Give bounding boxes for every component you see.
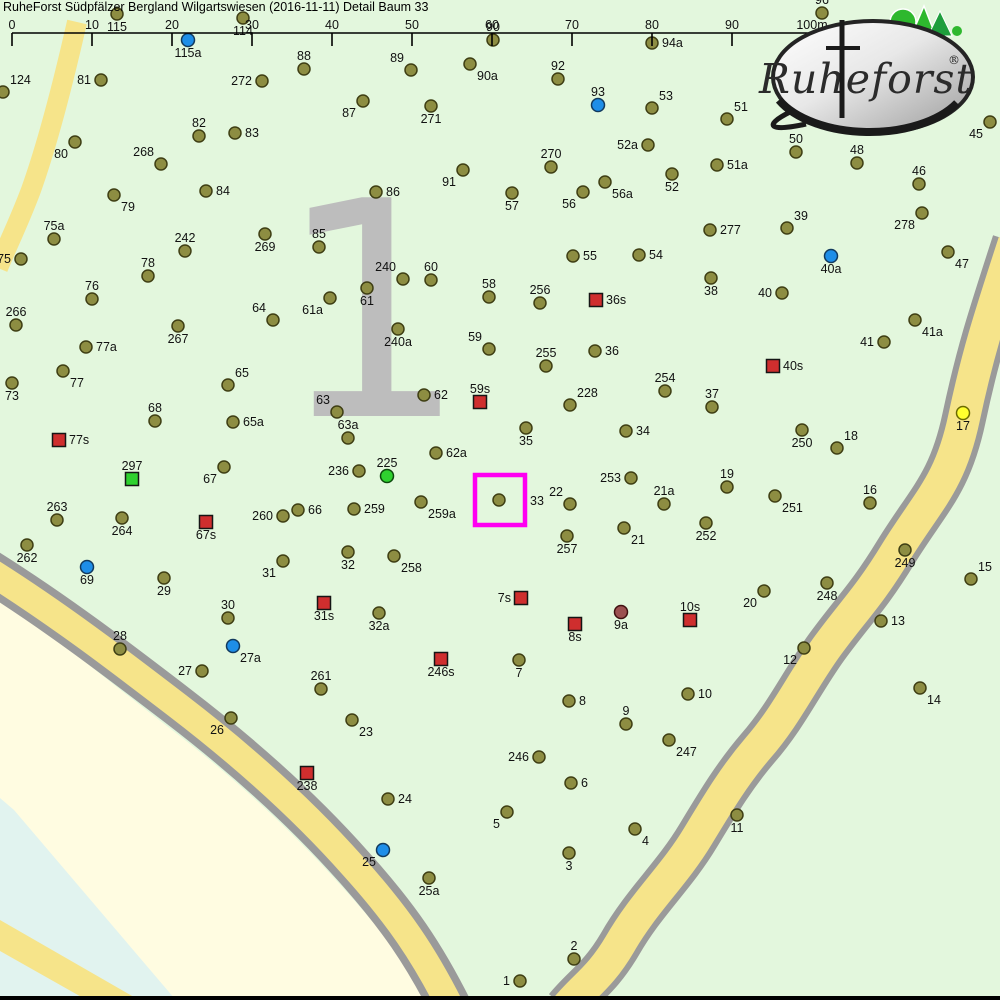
tree-olive-dot-62a[interactable] [430, 447, 442, 459]
scale-label-20: 20 [165, 18, 179, 32]
tree-olive-dot-58[interactable] [483, 291, 495, 303]
tree-olive-dot-2[interactable] [568, 953, 580, 965]
tree-label-63: 63 [316, 393, 330, 407]
tree-olive-dot-92[interactable] [552, 73, 564, 85]
tree-label-15: 15 [978, 560, 992, 574]
tree-label-271: 271 [421, 112, 442, 126]
tree-label-260: 260 [252, 509, 273, 523]
tree-olive-dot-236[interactable] [353, 465, 365, 477]
tree-label-27a: 27a [240, 651, 261, 665]
tree-olive-dot-252[interactable] [700, 517, 712, 529]
blue-dot-115a[interactable] [182, 34, 195, 47]
tree-label-247: 247 [676, 745, 697, 759]
tree-label-32a: 32a [369, 619, 390, 633]
tree-label-19: 19 [720, 467, 734, 481]
tree-label-73: 73 [5, 389, 19, 403]
tree-olive-dot-16[interactable] [864, 497, 876, 509]
tree-olive-dot-124[interactable] [0, 86, 9, 98]
tree-label-51a: 51a [727, 158, 748, 172]
tree-olive-dot-253[interactable] [625, 472, 637, 484]
tree-label-7: 7 [516, 666, 523, 680]
tree-olive-dot-76[interactable] [86, 293, 98, 305]
tree-olive-dot-64[interactable] [267, 314, 279, 326]
tree-label-258: 258 [401, 561, 422, 575]
tree-label-17: 17 [956, 419, 970, 433]
map-title: RuheForst Südpfälzer Bergland Wilgartswi… [3, 0, 428, 14]
tree-label-50: 50 [789, 132, 803, 146]
tree-label-86: 86 [386, 185, 400, 199]
tree-olive-dot-50[interactable] [790, 146, 802, 158]
scale-label-50: 50 [405, 18, 419, 32]
tree-label-63a: 63a [338, 418, 359, 432]
tree-label-25: 25 [362, 855, 376, 869]
tree-olive-dot-260[interactable] [277, 510, 289, 522]
tree-olive-dot-55[interactable] [567, 250, 579, 262]
tree-olive-dot-62[interactable] [418, 389, 430, 401]
tree-olive-dot-26[interactable] [225, 712, 237, 724]
tree-olive-dot-90a[interactable] [464, 58, 476, 70]
tree-label-21: 21 [631, 533, 645, 547]
tree-olive-dot-24[interactable] [382, 793, 394, 805]
tree-olive-dot-65a[interactable] [227, 416, 239, 428]
tree-label-35: 35 [519, 434, 533, 448]
tree-label-270: 270 [541, 147, 562, 161]
tree-label-68: 68 [148, 401, 162, 415]
tree-olive-dot-248[interactable] [821, 577, 833, 589]
tree-label-228: 228 [577, 386, 598, 400]
tree-olive-dot-11[interactable] [731, 809, 743, 821]
tree-olive-dot-48[interactable] [851, 157, 863, 169]
tree-label-53: 53 [659, 89, 673, 103]
tree-olive-dot-268[interactable] [155, 158, 167, 170]
tree-label-66: 66 [308, 503, 322, 517]
tree-label-69: 69 [80, 573, 94, 587]
tree-label-3: 3 [566, 859, 573, 873]
blue-dot-25[interactable] [377, 844, 390, 857]
tree-olive-dot-88[interactable] [298, 63, 310, 75]
tree-olive-dot-23[interactable] [346, 714, 358, 726]
tree-label-31s: 31s [314, 609, 334, 623]
red-square-marker-10s[interactable] [684, 614, 697, 627]
tree-label-24: 24 [398, 792, 412, 806]
tree-olive-dot-40[interactable] [776, 287, 788, 299]
tree-olive-dot-278[interactable] [916, 207, 928, 219]
tree-olive-dot-13[interactable] [875, 615, 887, 627]
tree-olive-dot-21a[interactable] [658, 498, 670, 510]
tree-label-268: 268 [133, 145, 154, 159]
tree-label-82: 82 [192, 116, 206, 130]
tree-olive-dot-3[interactable] [563, 847, 575, 859]
tree-olive-dot-32a[interactable] [373, 607, 385, 619]
tree-olive-dot-91[interactable] [457, 164, 469, 176]
tree-olive-dot-228[interactable] [564, 399, 576, 411]
tree-olive-dot-79[interactable] [108, 189, 120, 201]
tree-label-5: 5 [493, 817, 500, 831]
tree-olive-dot-33[interactable] [493, 494, 505, 506]
tree-olive-dot-271[interactable] [425, 100, 437, 112]
tree-olive-dot-51a[interactable] [711, 159, 723, 171]
tree-label-83: 83 [245, 126, 259, 140]
tree-olive-dot-25a[interactable] [423, 872, 435, 884]
tree-olive-dot-257[interactable] [561, 530, 573, 542]
red-square-marker-8s[interactable] [569, 618, 582, 631]
tree-label-77a: 77a [96, 340, 117, 354]
tree-olive-dot-240[interactable] [397, 273, 409, 285]
tree-olive-dot-14[interactable] [914, 682, 926, 694]
tree-olive-dot-4[interactable] [629, 823, 641, 835]
tree-olive-dot-1[interactable] [514, 975, 526, 987]
tree-olive-dot-51[interactable] [721, 113, 733, 125]
tree-olive-dot-264[interactable] [116, 512, 128, 524]
tree-label-259: 259 [364, 502, 385, 516]
tree-label-76: 76 [85, 279, 99, 293]
tree-label-84: 84 [216, 184, 230, 198]
tree-label-246s: 246s [427, 665, 454, 679]
tree-olive-dot-10[interactable] [682, 688, 694, 700]
tree-olive-dot-46[interactable] [913, 178, 925, 190]
tree-label-39: 39 [794, 209, 808, 223]
tree-label-62a: 62a [446, 446, 467, 460]
tree-label-40: 40 [758, 286, 772, 300]
tree-label-47: 47 [955, 257, 969, 271]
red-square-marker-7s[interactable] [515, 592, 528, 605]
tree-label-254: 254 [655, 371, 676, 385]
tree-olive-dot-12[interactable] [798, 642, 810, 654]
tree-olive-dot-6[interactable] [565, 777, 577, 789]
tree-olive-dot-80[interactable] [69, 136, 81, 148]
tree-label-67s: 67s [196, 528, 216, 542]
yellow-dot-17[interactable] [957, 407, 970, 420]
tree-olive-dot-67[interactable] [218, 461, 230, 473]
tree-olive-dot-18[interactable] [831, 442, 843, 454]
tree-label-67: 67 [203, 472, 217, 486]
blue-dot-40a[interactable] [825, 250, 838, 263]
darkred-dot-9a[interactable] [615, 606, 628, 619]
tree-olive-dot-19[interactable] [721, 481, 733, 493]
tree-label-46: 46 [912, 164, 926, 178]
tree-label-246: 246 [508, 750, 529, 764]
tree-label-14: 14 [927, 693, 941, 707]
tree-olive-dot-255[interactable] [540, 360, 552, 372]
tree-olive-dot-256[interactable] [534, 297, 546, 309]
tree-olive-dot-32[interactable] [342, 546, 354, 558]
red-square-marker-31s[interactable] [318, 597, 331, 610]
tree-label-115a: 115a [175, 46, 202, 60]
tree-label-51: 51 [734, 100, 748, 114]
tree-label-59: 59 [468, 330, 482, 344]
tree-olive-dot-21[interactable] [618, 522, 630, 534]
tree-olive-dot-29[interactable] [158, 572, 170, 584]
tree-label-93: 93 [591, 85, 605, 99]
scale-label-70: 70 [565, 18, 579, 32]
tree-label-77s: 77s [69, 433, 89, 447]
tree-label-124: 124 [10, 73, 31, 87]
tree-label-62: 62 [434, 388, 448, 402]
red-square-marker-67s[interactable] [200, 516, 213, 529]
green-dot-225[interactable] [381, 470, 394, 483]
tree-label-32: 32 [341, 558, 355, 572]
tree-label-56: 56 [562, 197, 576, 211]
tree-olive-dot-84[interactable] [200, 185, 212, 197]
tree-olive-dot-52[interactable] [666, 168, 678, 180]
red-square-marker-36s[interactable] [590, 294, 603, 307]
tree-label-40s: 40s [783, 359, 803, 373]
tree-label-36: 36 [605, 344, 619, 358]
tree-label-256: 256 [530, 283, 551, 297]
tree-olive-dot-22[interactable] [564, 498, 576, 510]
tree-label-65a: 65a [243, 415, 264, 429]
tree-olive-dot-8[interactable] [563, 695, 575, 707]
tree-olive-dot-87[interactable] [357, 95, 369, 107]
tree-label-34: 34 [636, 424, 650, 438]
tree-olive-dot-45[interactable] [984, 116, 996, 128]
tree-label-37: 37 [705, 387, 719, 401]
tree-olive-dot-61a[interactable] [324, 292, 336, 304]
tree-olive-dot-52a[interactable] [642, 139, 654, 151]
tree-olive-dot-34[interactable] [620, 425, 632, 437]
tree-olive-dot-240a[interactable] [392, 323, 404, 335]
tree-olive-dot-54[interactable] [633, 249, 645, 261]
tree-label-92: 92 [551, 59, 565, 73]
tree-olive-dot-259[interactable] [348, 503, 360, 515]
tree-olive-dot-254[interactable] [659, 385, 671, 397]
tree-label-36s: 36s [606, 293, 626, 307]
map-canvas[interactable]: 1 115114115a9694a9012481888990a272929353… [0, 0, 1000, 1000]
tree-label-269: 269 [255, 240, 276, 254]
tree-label-255: 255 [536, 346, 557, 360]
tree-label-28: 28 [113, 629, 127, 643]
tree-olive-dot-41[interactable] [878, 336, 890, 348]
logo-registered-mark: ® [948, 53, 960, 67]
tree-olive-dot-250[interactable] [796, 424, 808, 436]
tree-label-57: 57 [505, 199, 519, 213]
tree-label-263: 263 [47, 500, 68, 514]
tree-olive-dot-86[interactable] [370, 186, 382, 198]
tree-label-115: 115 [107, 20, 127, 34]
tree-olive-dot-35[interactable] [520, 422, 532, 434]
tree-olive-dot-7[interactable] [513, 654, 525, 666]
tree-olive-dot-9[interactable] [620, 718, 632, 730]
tree-label-10s: 10s [680, 600, 700, 614]
tree-label-31: 31 [262, 566, 276, 580]
tree-olive-dot-77a[interactable] [80, 341, 92, 353]
tree-olive-dot-89[interactable] [405, 64, 417, 76]
blue-dot-93[interactable] [592, 99, 605, 112]
tree-olive-dot-85[interactable] [313, 241, 325, 253]
tree-label-94a: 94a [662, 36, 683, 50]
tree-olive-dot-57[interactable] [506, 187, 518, 199]
green-square-marker-297[interactable] [126, 473, 139, 486]
tree-label-238: 238 [297, 779, 318, 793]
tree-label-278: 278 [894, 218, 915, 232]
tree-label-249: 249 [895, 556, 916, 570]
tree-label-272: 272 [231, 74, 252, 88]
tree-label-262: 262 [17, 551, 38, 565]
tree-olive-dot-81[interactable] [95, 74, 107, 86]
tree-olive-dot-269[interactable] [259, 228, 271, 240]
tree-label-8s: 8s [568, 630, 581, 644]
tree-olive-dot-63[interactable] [331, 406, 343, 418]
tree-label-29: 29 [157, 584, 171, 598]
tree-label-64: 64 [252, 301, 266, 315]
tree-label-257: 257 [557, 542, 578, 556]
scale-label-0: 0 [9, 18, 16, 32]
tree-label-88: 88 [297, 49, 311, 63]
tree-olive-dot-272[interactable] [256, 75, 268, 87]
tree-olive-dot-38[interactable] [705, 272, 717, 284]
scale-label-10: 10 [85, 18, 99, 32]
tree-olive-dot-247[interactable] [663, 734, 675, 746]
tree-label-13: 13 [891, 614, 905, 628]
tree-label-81: 81 [77, 73, 91, 87]
tree-olive-dot-53[interactable] [646, 102, 658, 114]
blue-dot-27a[interactable] [227, 640, 240, 653]
tree-olive-dot-266[interactable] [10, 319, 22, 331]
tree-label-277: 277 [720, 223, 741, 237]
red-square-marker-246s[interactable] [435, 653, 448, 666]
tree-olive-dot-90[interactable] [487, 34, 499, 46]
tree-olive-dot-246[interactable] [533, 751, 545, 763]
tree-label-8: 8 [579, 694, 586, 708]
tree-olive-dot-68[interactable] [149, 415, 161, 427]
tree-olive-dot-263[interactable] [51, 514, 63, 526]
tree-label-21a: 21a [654, 484, 675, 498]
tree-olive-dot-20[interactable] [758, 585, 770, 597]
tree-label-61a: 61a [302, 303, 323, 317]
tree-label-18: 18 [844, 429, 858, 443]
tree-olive-dot-249[interactable] [899, 544, 911, 556]
tree-label-52: 52 [665, 180, 679, 194]
tree-label-27: 27 [178, 664, 192, 678]
map-bottom-border [0, 996, 1000, 1000]
tree-olive-dot-56[interactable] [577, 186, 589, 198]
tree-olive-dot-78[interactable] [142, 270, 154, 282]
tree-label-30: 30 [221, 598, 235, 612]
tree-label-25a: 25a [419, 884, 440, 898]
tree-label-253: 253 [600, 471, 621, 485]
tree-label-248: 248 [817, 589, 838, 603]
tree-olive-dot-5[interactable] [501, 806, 513, 818]
tree-label-40a: 40a [821, 262, 842, 276]
tree-olive-dot-27[interactable] [196, 665, 208, 677]
tree-label-20: 20 [743, 596, 757, 610]
tree-label-266: 266 [6, 305, 27, 319]
tree-olive-dot-39[interactable] [781, 222, 793, 234]
tree-label-10: 10 [698, 687, 712, 701]
tree-olive-dot-65[interactable] [222, 379, 234, 391]
tree-label-55: 55 [583, 249, 597, 263]
tree-olive-dot-267[interactable] [172, 320, 184, 332]
tree-olive-dot-242[interactable] [179, 245, 191, 257]
tree-label-6: 6 [581, 776, 588, 790]
tree-label-78: 78 [141, 256, 155, 270]
tree-olive-dot-41a[interactable] [909, 314, 921, 326]
tree-label-251: 251 [782, 501, 803, 515]
tree-label-59s: 59s [470, 382, 490, 396]
tree-label-75a: 75a [44, 219, 65, 233]
red-square-marker-77s[interactable] [53, 434, 66, 447]
tree-olive-dot-259a[interactable] [415, 496, 427, 508]
blue-dot-69[interactable] [81, 561, 94, 574]
tree-label-297: 297 [122, 459, 143, 473]
tree-label-22: 22 [549, 485, 563, 499]
tree-label-45: 45 [969, 127, 983, 141]
tree-olive-dot-261[interactable] [315, 683, 327, 695]
tree-olive-dot-37[interactable] [706, 401, 718, 413]
tree-label-56a: 56a [612, 187, 633, 201]
tree-label-261: 261 [311, 669, 332, 683]
tree-label-267: 267 [168, 332, 189, 346]
tree-label-11: 11 [731, 821, 744, 835]
tree-olive-dot-66[interactable] [292, 504, 304, 516]
tree-label-9a: 9a [614, 618, 628, 632]
tree-olive-dot-82[interactable] [193, 130, 205, 142]
tree-label-242: 242 [175, 231, 196, 245]
tree-label-48: 48 [850, 143, 864, 157]
tree-olive-dot-73[interactable] [6, 377, 18, 389]
tree-olive-dot-28[interactable] [114, 643, 126, 655]
tree-olive-dot-75[interactable] [15, 253, 27, 265]
tree-label-60: 60 [424, 260, 438, 274]
tree-olive-dot-59[interactable] [483, 343, 495, 355]
tree-olive-dot-60[interactable] [425, 274, 437, 286]
scale-label-40: 40 [325, 18, 339, 32]
tree-label-23: 23 [359, 725, 373, 739]
tree-olive-dot-77[interactable] [57, 365, 69, 377]
tree-label-26: 26 [210, 723, 224, 737]
tree-olive-dot-31[interactable] [277, 555, 289, 567]
tree-olive-dot-61[interactable] [361, 282, 373, 294]
red-square-marker-59s[interactable] [474, 396, 487, 409]
map-window: 1 115114115a9694a9012481888990a272929353… [0, 0, 1000, 1000]
tree-label-96: 96 [815, 0, 829, 7]
tree-label-75: 75 [0, 252, 11, 266]
tree-label-4: 4 [642, 834, 649, 848]
red-square-marker-40s[interactable] [767, 360, 780, 373]
tree-label-252: 252 [696, 529, 717, 543]
scale-label-80: 80 [645, 18, 659, 32]
tree-label-240: 240 [375, 260, 396, 274]
scale-label-60: 60 [485, 18, 499, 32]
tree-label-54: 54 [649, 248, 663, 262]
tree-label-250: 250 [792, 436, 813, 450]
tree-olive-dot-83[interactable] [229, 127, 241, 139]
tree-olive-dot-56a[interactable] [599, 176, 611, 188]
tree-olive-dot-63a[interactable] [342, 432, 354, 444]
red-square-marker-238[interactable] [301, 767, 314, 780]
tree-olive-dot-36[interactable] [589, 345, 601, 357]
logo-wordmark: Ruheforst [758, 55, 973, 103]
tree-olive-dot-262[interactable] [21, 539, 33, 551]
tree-olive-dot-75a[interactable] [48, 233, 60, 245]
tree-olive-dot-15[interactable] [965, 573, 977, 585]
tree-label-2: 2 [571, 939, 578, 953]
tree-olive-dot-251[interactable] [769, 490, 781, 502]
scale-label-90: 90 [725, 18, 739, 32]
tree-label-259a: 259a [428, 507, 456, 521]
tree-olive-dot-47[interactable] [942, 246, 954, 258]
tree-label-264: 264 [112, 524, 133, 538]
tree-olive-dot-258[interactable] [388, 550, 400, 562]
tree-olive-dot-30[interactable] [222, 612, 234, 624]
tree-label-38: 38 [704, 284, 718, 298]
tree-olive-dot-270[interactable] [545, 161, 557, 173]
tree-label-79: 79 [121, 200, 135, 214]
tree-label-41a: 41a [922, 325, 943, 339]
tree-label-61: 61 [360, 294, 374, 308]
tree-label-89: 89 [390, 51, 404, 65]
tree-olive-dot-277[interactable] [704, 224, 716, 236]
